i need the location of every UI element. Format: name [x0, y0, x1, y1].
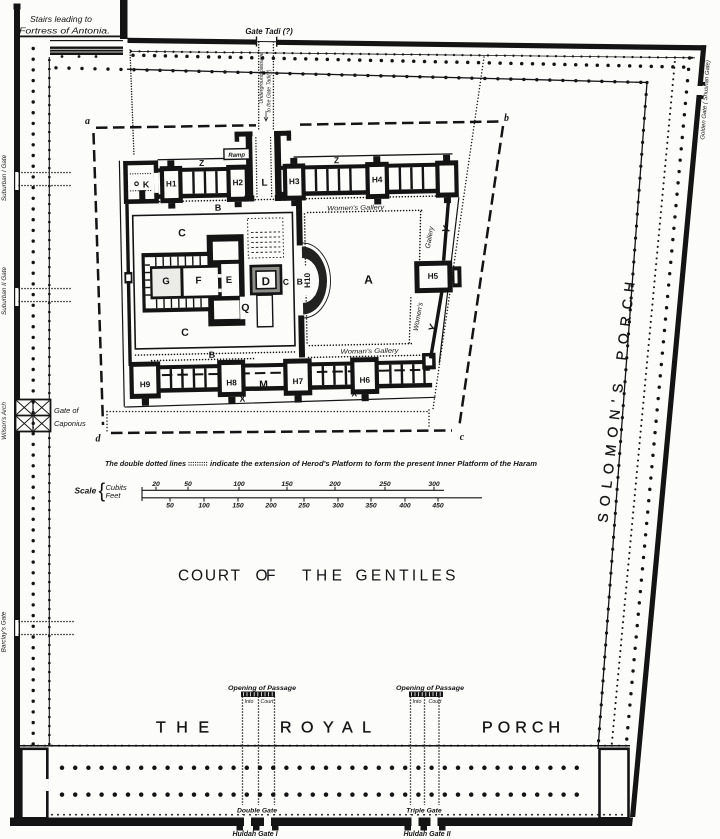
svg-text:Wilson's Arch: Wilson's Arch — [1, 402, 8, 440]
svg-text:G: G — [162, 276, 170, 287]
svg-text:20: 20 — [151, 481, 160, 488]
svg-text:H9: H9 — [140, 380, 151, 389]
svg-text:Feet: Feet — [106, 491, 122, 500]
svg-text:200: 200 — [264, 503, 277, 510]
svg-text:Ramp: Ramp — [228, 153, 245, 159]
svg-text:Woman's Gallery: Woman's Gallery — [340, 348, 399, 356]
svg-text:Opening of Passage: Opening of Passage — [228, 685, 296, 692]
svg-text:Double Gate: Double Gate — [237, 808, 277, 815]
svg-text:H4: H4 — [372, 175, 383, 184]
svg-text:X: X — [351, 388, 357, 398]
svg-text:OF: OF — [256, 568, 276, 585]
svg-text:Gate Tadi (?): Gate Tadi (?) — [245, 27, 293, 36]
svg-text:H10: H10 — [303, 272, 312, 288]
svg-text:THE: THE — [156, 720, 209, 737]
svg-text:Suburban I Gate: Suburban I Gate — [1, 154, 8, 201]
svg-text:C: C — [283, 277, 289, 287]
svg-text:C: C — [181, 327, 189, 339]
svg-text:L: L — [261, 178, 267, 189]
svg-text:350: 350 — [365, 503, 377, 510]
svg-text:b: b — [504, 113, 509, 124]
svg-text:B: B — [215, 203, 222, 213]
svg-text:450: 450 — [431, 503, 444, 510]
svg-text:Into: Into — [413, 699, 422, 705]
svg-text:Z: Z — [199, 158, 204, 168]
svg-text:c: c — [460, 432, 465, 443]
svg-text:150: 150 — [232, 503, 244, 510]
svg-text:E: E — [226, 275, 233, 286]
svg-text:Huldah Gate II: Huldah Gate II — [403, 831, 451, 838]
svg-text:100: 100 — [198, 503, 210, 510]
svg-text:indicate the extension of Hero: indicate the extension of Herod's Platfo… — [210, 459, 537, 468]
svg-text:D: D — [262, 276, 271, 288]
svg-text:Huldah Gate I: Huldah Gate I — [232, 831, 278, 838]
svg-text:150: 150 — [281, 481, 293, 488]
svg-text:C: C — [178, 227, 186, 239]
svg-text:300: 300 — [428, 481, 440, 488]
svg-text:Stairs leading to: Stairs leading to — [30, 15, 92, 24]
svg-text:K: K — [143, 179, 150, 189]
svg-text:400: 400 — [398, 503, 411, 510]
svg-text:H3: H3 — [289, 177, 300, 186]
svg-text:H8: H8 — [226, 378, 237, 387]
svg-text:to the Gate Tadi(?): to the Gate Tadi(?) — [267, 69, 273, 112]
svg-text:A: A — [364, 273, 373, 287]
svg-text:Suburban II Gate: Suburban II Gate — [1, 267, 8, 315]
svg-text:The double dotted lines: The double dotted lines — [105, 459, 186, 468]
svg-text:Q: Q — [241, 302, 249, 314]
svg-text:Into: Into — [245, 699, 254, 705]
svg-text:Underground passage: Underground passage — [259, 52, 265, 103]
svg-text:H2: H2 — [233, 178, 244, 187]
svg-text:M: M — [259, 379, 268, 391]
svg-text:Caponius: Caponius — [54, 419, 86, 428]
svg-text:a: a — [85, 116, 90, 127]
svg-text:Women's Gallery: Women's Gallery — [327, 204, 385, 212]
svg-text:Court: Court — [261, 699, 274, 705]
svg-text:F: F — [195, 275, 201, 286]
svg-text:Gate of: Gate of — [54, 406, 80, 415]
svg-text:H5: H5 — [428, 272, 439, 281]
svg-text:50: 50 — [184, 481, 192, 488]
svg-text:THE: THE — [302, 568, 342, 585]
svg-text:Barclay's Gate: Barclay's Gate — [1, 611, 8, 652]
svg-text:Scale: Scale — [75, 486, 97, 496]
svg-text:X: X — [239, 394, 245, 404]
svg-text:Opening of Passage: Opening of Passage — [396, 685, 464, 692]
svg-text:H1: H1 — [166, 179, 177, 188]
svg-text:Z: Z — [334, 155, 339, 165]
svg-text:250: 250 — [378, 481, 391, 488]
svg-text:250: 250 — [297, 503, 310, 510]
svg-text:GENTILES: GENTILES — [356, 568, 456, 585]
svg-text:Triple Gate: Triple Gate — [406, 808, 442, 815]
svg-text:B: B — [209, 350, 216, 360]
svg-text:COURT: COURT — [178, 568, 241, 585]
svg-text:H6: H6 — [360, 376, 371, 385]
svg-text:Fortress of Antonia.: Fortress of Antonia. — [19, 27, 110, 36]
svg-text:300: 300 — [332, 503, 344, 510]
svg-text:200: 200 — [328, 481, 341, 488]
svg-text:Court: Court — [429, 699, 442, 705]
svg-text:100: 100 — [233, 481, 245, 488]
svg-text:H7: H7 — [293, 377, 304, 386]
svg-text:50: 50 — [166, 503, 174, 510]
svg-text:{: { — [99, 481, 106, 503]
